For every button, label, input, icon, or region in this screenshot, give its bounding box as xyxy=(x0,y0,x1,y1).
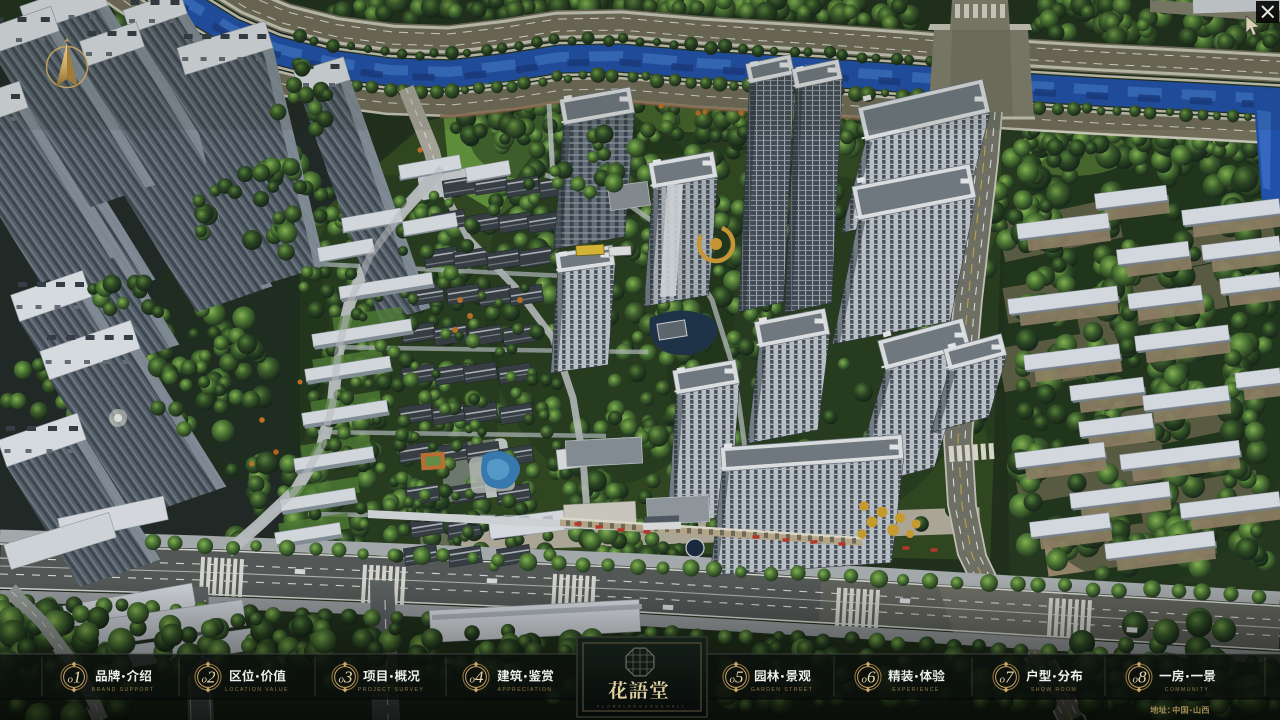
svg-text:APPRECIATION: APPRECIATION xyxy=(497,687,552,693)
svg-text:F L O R A L A N G U A G E H A: F L O R A L A N G U A G E H A L L xyxy=(597,705,685,709)
svg-text:BRAND SUPPORT: BRAND SUPPORT xyxy=(92,687,155,693)
svg-text:PROJECT SURVEY: PROJECT SURVEY xyxy=(358,687,424,693)
svg-text:SHOW ROOM: SHOW ROOM xyxy=(1031,687,1077,693)
svg-text:LOCATION VALUE: LOCATION VALUE xyxy=(225,687,289,693)
svg-text:COMMUNITY: COMMUNITY xyxy=(1165,687,1210,693)
svg-text:EXPERIENCE: EXPERIENCE xyxy=(892,687,939,693)
svg-text:GARDEN STREET: GARDEN STREET xyxy=(751,687,813,693)
